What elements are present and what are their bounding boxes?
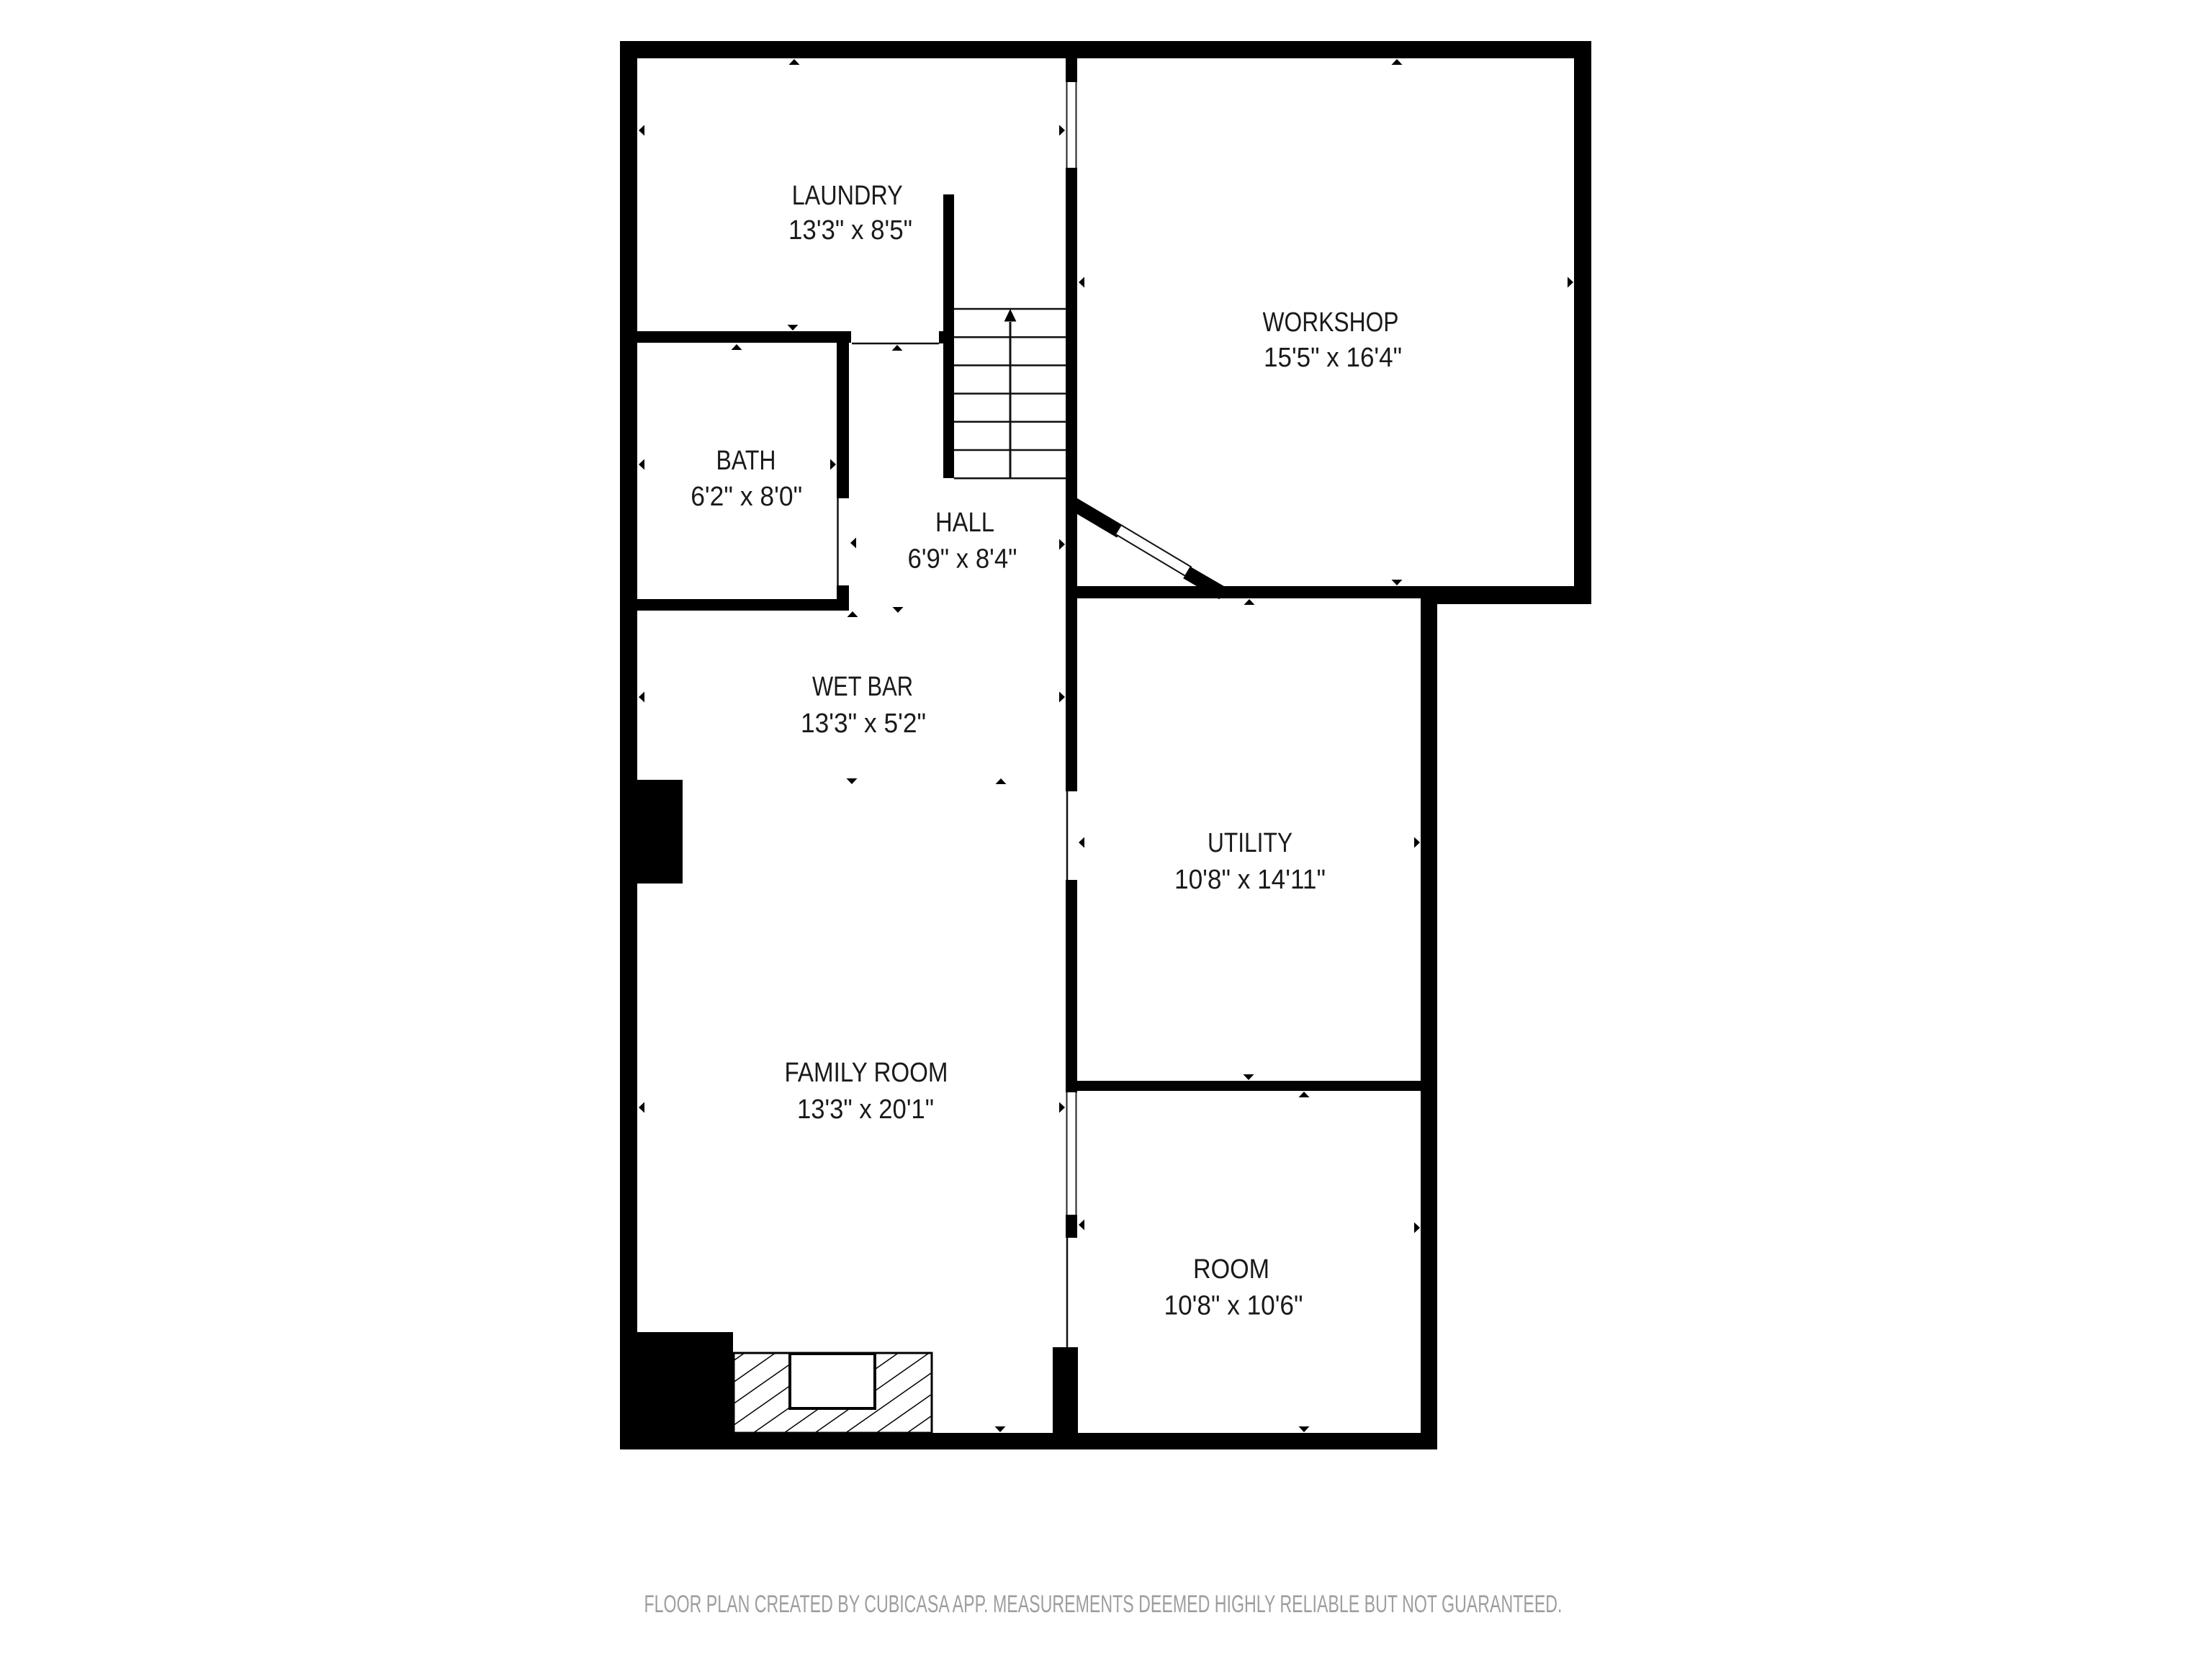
svg-text:10'8" x 10'6": 10'8" x 10'6" bbox=[1164, 1291, 1303, 1321]
svg-text:WORKSHOP: WORKSHOP bbox=[1263, 307, 1399, 338]
svg-text:13'3" x 20'1": 13'3" x 20'1" bbox=[797, 1094, 934, 1125]
svg-text:FAMILY ROOM: FAMILY ROOM bbox=[785, 1058, 948, 1088]
svg-text:HALL: HALL bbox=[935, 508, 994, 538]
svg-text:UTILITY: UTILITY bbox=[1208, 828, 1292, 858]
svg-text:10'8" x 14'11": 10'8" x 14'11" bbox=[1174, 865, 1326, 895]
svg-text:LAUNDRY: LAUNDRY bbox=[792, 181, 903, 211]
svg-text:ROOM: ROOM bbox=[1193, 1254, 1269, 1285]
svg-text:WET BAR: WET BAR bbox=[812, 672, 913, 702]
svg-text:6'9" x 8'4": 6'9" x 8'4" bbox=[908, 544, 1017, 575]
svg-text:FLOOR PLAN CREATED BY CUBICASA: FLOOR PLAN CREATED BY CUBICASA APP. MEAS… bbox=[644, 1591, 1563, 1618]
svg-text:15'5" x 16'4": 15'5" x 16'4" bbox=[1264, 343, 1402, 373]
svg-text:13'3" x 8'5": 13'3" x 8'5" bbox=[788, 215, 912, 246]
svg-text:13'3" x 5'2": 13'3" x 5'2" bbox=[801, 709, 926, 739]
svg-text:BATH: BATH bbox=[716, 446, 776, 476]
svg-text:6'2" x 8'0": 6'2" x 8'0" bbox=[691, 482, 802, 512]
